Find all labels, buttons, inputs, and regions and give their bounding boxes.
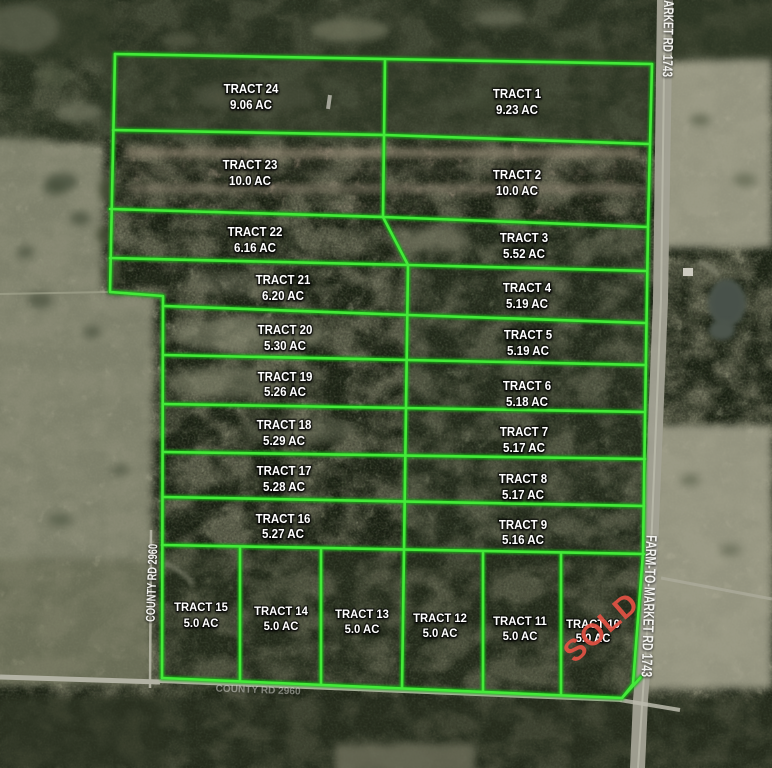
svg-text:TRACT 7: TRACT 7 [500, 424, 548, 439]
svg-text:TRACT 11: TRACT 11 [493, 614, 547, 628]
svg-text:5.27 AC: 5.27 AC [262, 526, 304, 541]
svg-text:TRACT 14: TRACT 14 [254, 604, 308, 618]
svg-text:TRACT 8: TRACT 8 [499, 471, 547, 486]
svg-text:TRACT 17: TRACT 17 [257, 463, 312, 478]
svg-text:5.30 AC: 5.30 AC [264, 338, 306, 353]
svg-text:TRACT 1: TRACT 1 [493, 86, 541, 101]
svg-text:TRACT 21: TRACT 21 [256, 272, 311, 287]
svg-text:TRACT 24: TRACT 24 [224, 81, 279, 96]
svg-text:5.26 AC: 5.26 AC [264, 384, 306, 399]
svg-text:5.19 AC: 5.19 AC [507, 343, 549, 358]
svg-text:5.16 AC: 5.16 AC [502, 532, 544, 547]
svg-text:5.52 AC: 5.52 AC [503, 246, 545, 261]
svg-text:10.0 AC: 10.0 AC [496, 183, 538, 198]
svg-text:5.29 AC: 5.29 AC [263, 433, 305, 448]
svg-text:TRACT 13: TRACT 13 [335, 607, 389, 621]
svg-text:FARM-TO-MARKET RD 1743: FARM-TO-MARKET RD 1743 [660, 0, 678, 77]
svg-text:TRACT 16: TRACT 16 [256, 511, 311, 526]
svg-text:5.17 AC: 5.17 AC [502, 487, 544, 502]
svg-text:COUNTY RD 2960: COUNTY RD 2960 [143, 544, 161, 622]
svg-text:5.19 AC: 5.19 AC [506, 296, 548, 311]
svg-text:TRACT 20: TRACT 20 [258, 322, 313, 337]
svg-text:TRACT 12: TRACT 12 [413, 611, 467, 625]
svg-text:5.0 AC: 5.0 AC [345, 622, 380, 636]
svg-text:TRACT 22: TRACT 22 [228, 224, 283, 239]
svg-text:5.17 AC: 5.17 AC [503, 440, 545, 455]
svg-text:5.28 AC: 5.28 AC [263, 479, 305, 494]
svg-text:TRACT 19: TRACT 19 [258, 369, 313, 384]
svg-text:10.0 AC: 10.0 AC [229, 173, 271, 188]
svg-text:TRACT 18: TRACT 18 [257, 417, 312, 432]
svg-text:TRACT 9: TRACT 9 [499, 517, 547, 532]
svg-text:TRACT 23: TRACT 23 [223, 157, 278, 172]
svg-text:6.16 AC: 6.16 AC [234, 240, 276, 255]
svg-text:6.20 AC: 6.20 AC [262, 288, 304, 303]
svg-text:TRACT 2: TRACT 2 [493, 167, 541, 182]
svg-text:5.0 AC: 5.0 AC [503, 629, 538, 643]
svg-text:5.0 AC: 5.0 AC [264, 619, 299, 633]
svg-text:TRACT 5: TRACT 5 [504, 327, 552, 342]
svg-text:9.23 AC: 9.23 AC [496, 102, 538, 117]
svg-text:5.18 AC: 5.18 AC [506, 394, 548, 409]
svg-text:5.0 AC: 5.0 AC [423, 626, 458, 640]
svg-text:9.06 AC: 9.06 AC [230, 97, 272, 112]
svg-text:TRACT 4: TRACT 4 [503, 280, 552, 295]
svg-text:TRACT 3: TRACT 3 [500, 230, 548, 245]
svg-text:5.0 AC: 5.0 AC [184, 616, 219, 630]
svg-text:TRACT 15: TRACT 15 [174, 600, 228, 614]
svg-text:TRACT 6: TRACT 6 [503, 378, 551, 393]
